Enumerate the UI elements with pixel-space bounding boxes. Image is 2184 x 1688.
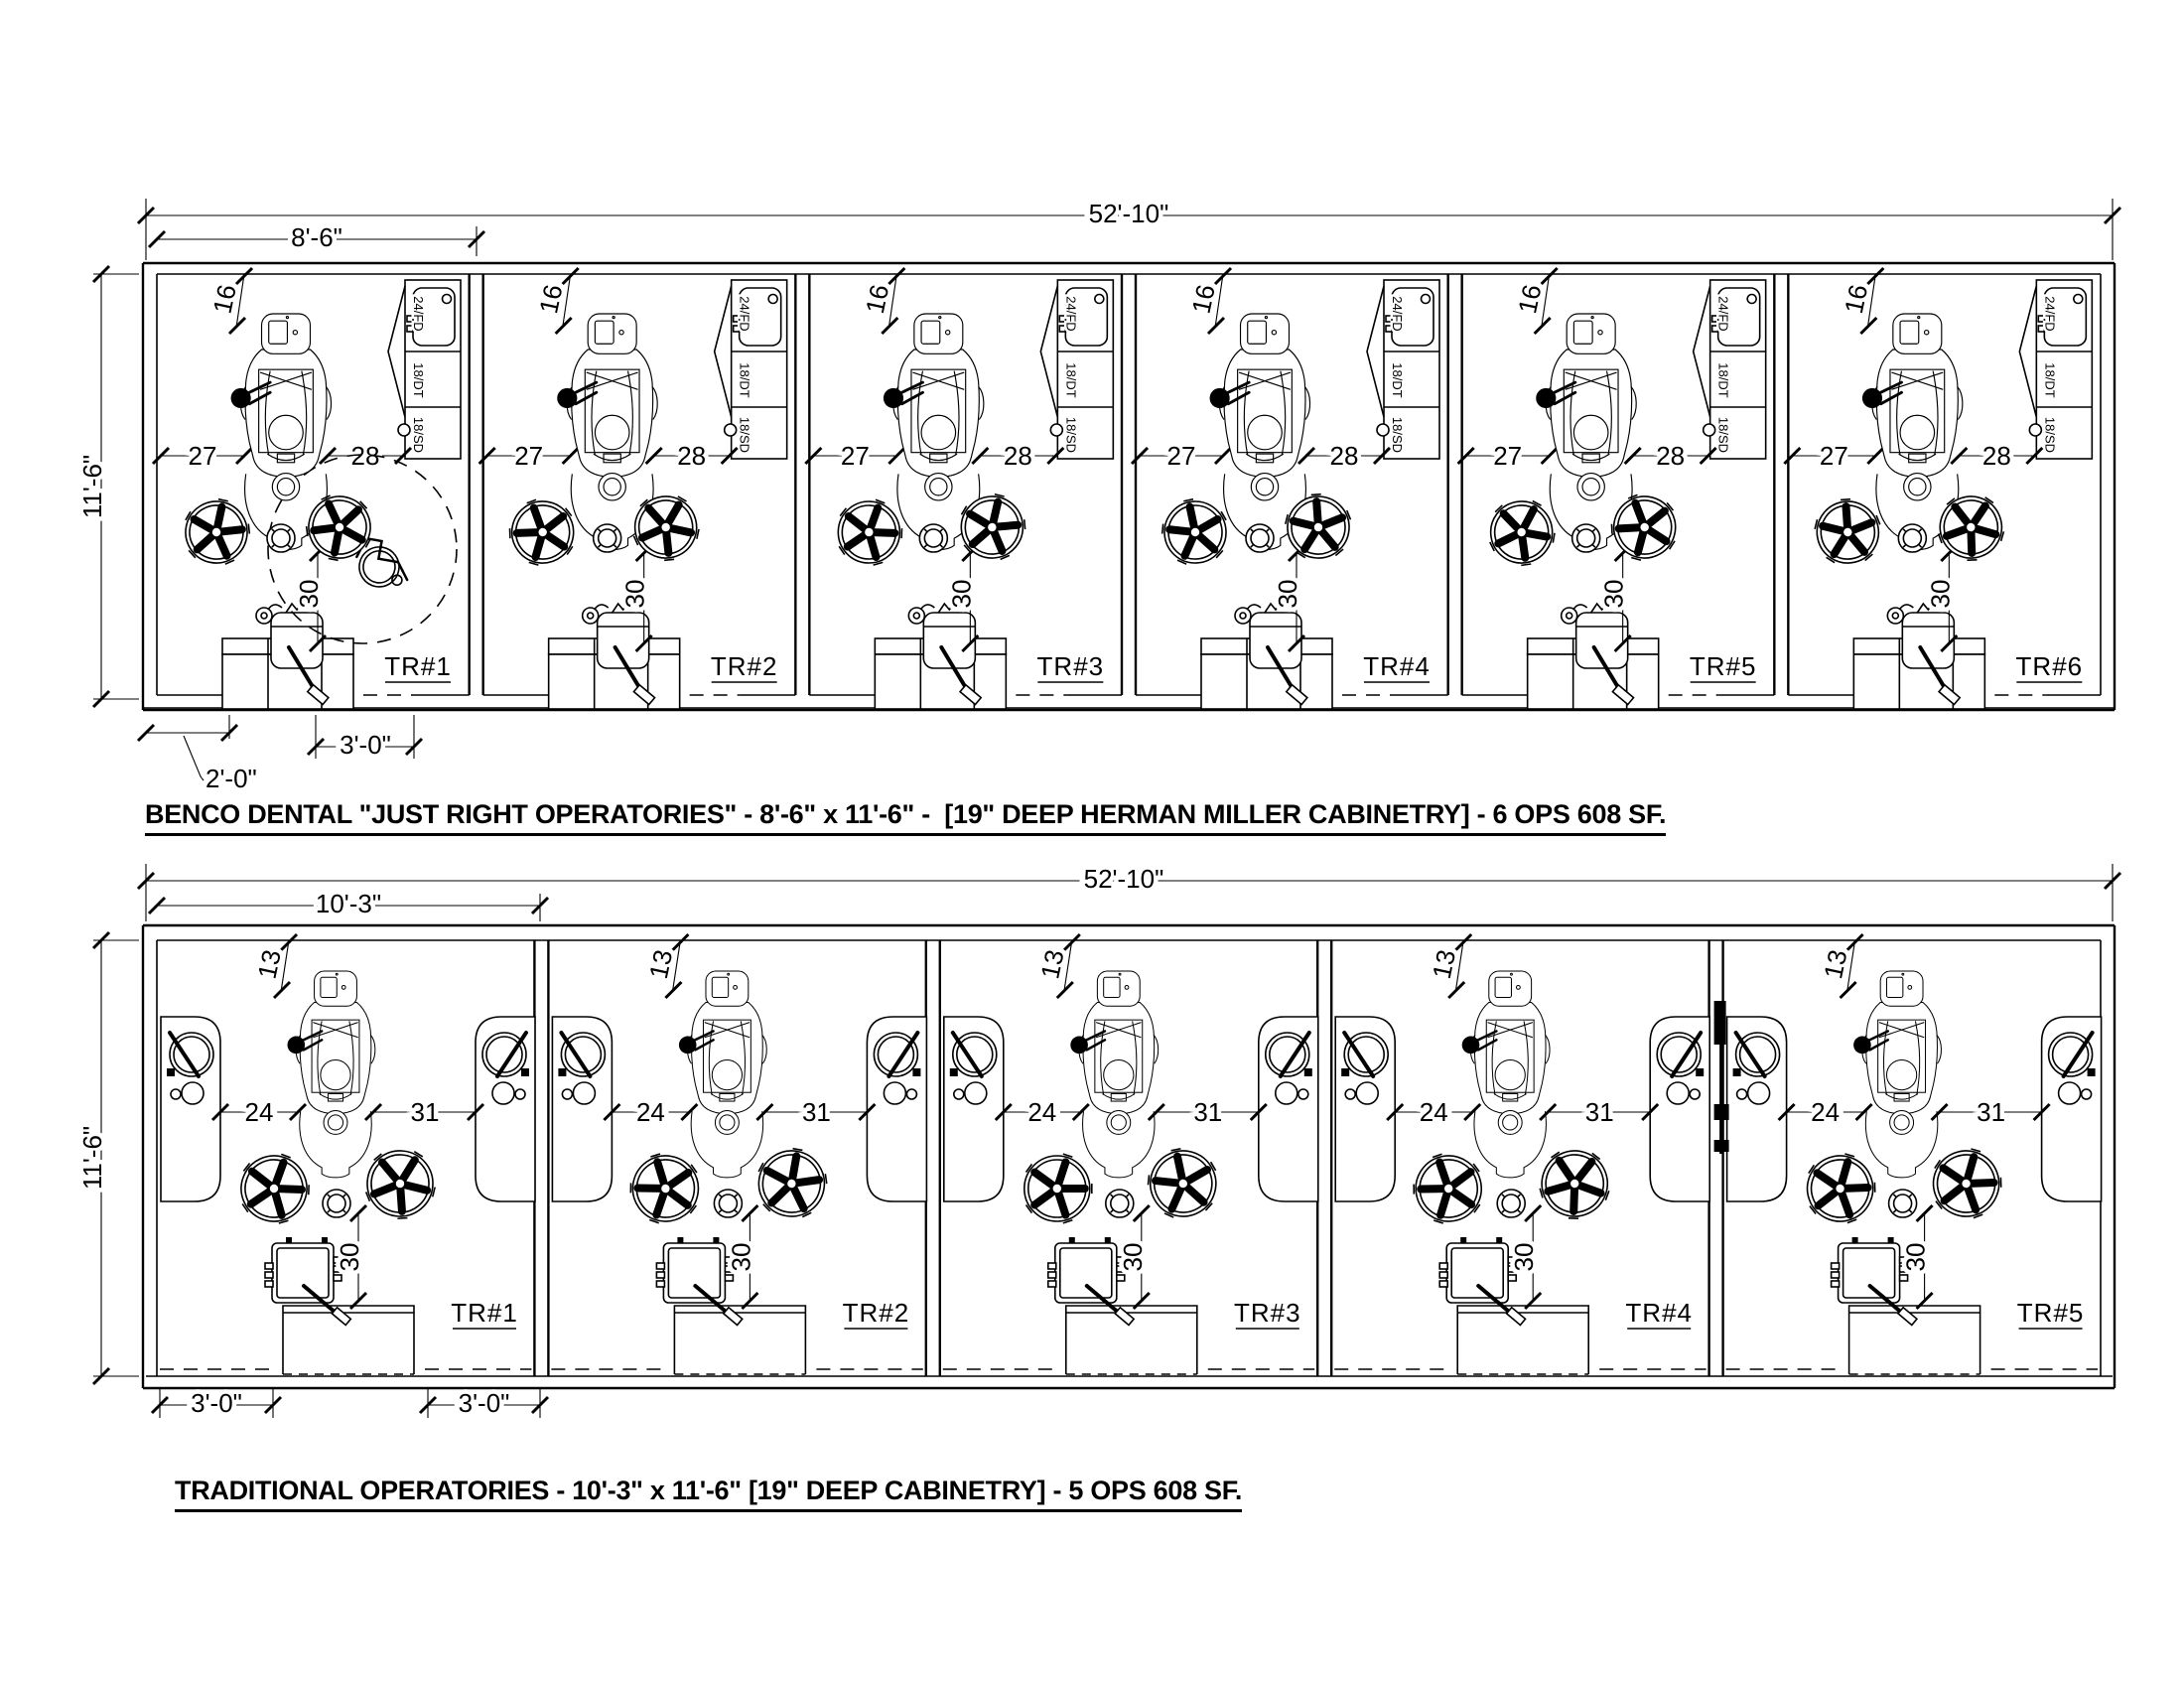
cabinet-size-label: 18/DT	[738, 362, 752, 397]
dental-chair	[679, 971, 766, 1178]
operatory-TR#1: 24313013TR#1	[161, 934, 535, 1374]
head-clearance-dimension: 13	[643, 934, 688, 998]
dim-text: 27	[189, 441, 217, 471]
sink-counter	[476, 1017, 535, 1201]
dim-text: 30	[620, 580, 650, 609]
traditional-plan-caption: TRADITIONAL OPERATORIES - 10'-3" x 11'-6…	[175, 1476, 1242, 1512]
dim-text: 13	[252, 947, 287, 982]
cuspidor-stool	[594, 524, 621, 552]
room-label: TR#2	[711, 651, 778, 681]
sink-cabinet: 24/FD18/DT18/SD	[1040, 280, 1113, 459]
operator-stool	[178, 493, 255, 569]
head-clearance-dimension: 16	[533, 268, 578, 334]
plan-dimensions: 52'-10"10'-3"11'-6"3'-0"3'-0"	[77, 864, 2120, 1418]
head-clearance-dimension: 16	[1512, 268, 1557, 334]
cabinet-size-label: 18/DT	[411, 362, 426, 397]
sink-counter	[1335, 1017, 1395, 1201]
cabinet-size-label: 24/FD	[1063, 296, 1078, 331]
room-label: TR#3	[1234, 1298, 1301, 1328]
operatory-TR#6: 24/FD18/DT18/SD27283016TR#6	[1784, 268, 2092, 709]
bay-width-dim: 8'-6"	[291, 222, 342, 252]
dim-text: 30	[946, 580, 976, 609]
cuspidor-stool	[1246, 524, 1274, 552]
dim-text: 16	[860, 282, 894, 317]
sink-counter	[944, 1017, 1004, 1201]
head-clearance-dimension: 13	[252, 934, 297, 998]
operator-stool	[1274, 483, 1365, 573]
cuspidor-stool	[267, 524, 295, 552]
chair-to-counter-dimension: 30	[1509, 1205, 1541, 1309]
cabinet-size-label: 18/DT	[1390, 362, 1405, 397]
dim-text: 30	[1901, 1243, 1931, 1272]
chair-to-counter-dimension: 30	[726, 1205, 757, 1309]
plan-drawing-canvas: 24/FD18/DT18/SD27283016TR#124/FD18/DT18/…	[0, 0, 2184, 1688]
dim-text: 13	[1427, 947, 1461, 982]
cabinet-size-label: 18/DT	[1716, 362, 1731, 397]
operator-stool	[622, 483, 711, 570]
head-clearance-dimension: 16	[1186, 268, 1231, 334]
cabinet-size-label: 18/DT	[1063, 362, 1078, 397]
room-label: TR#1	[384, 651, 452, 681]
operator-stool	[1797, 1146, 1885, 1233]
operatory-TR#3: 24/FD18/DT18/SD27283016TR#3	[805, 268, 1113, 709]
cabinet-size-label: 18/SD	[1063, 417, 1078, 453]
chair-to-counter-dimension: 30	[1118, 1205, 1150, 1309]
room-label: TR#3	[1037, 651, 1105, 681]
dental-chair	[287, 971, 374, 1178]
dim-text: 24	[636, 1097, 665, 1127]
operatory-TR#2: 24313013TR#2	[552, 934, 926, 1374]
head-clearance-dimension: 16	[207, 268, 252, 334]
dim-text: 24	[245, 1097, 274, 1127]
operatory-TR#1: 24/FD18/DT18/SD27283016TR#1	[153, 268, 461, 709]
dim-text: 13	[1818, 947, 1852, 982]
dim-text: 16	[533, 282, 568, 317]
sink-counter	[161, 1017, 220, 1201]
dental-chair	[1462, 971, 1550, 1178]
operator-stool	[1485, 497, 1559, 570]
cuspidor-stool	[714, 1190, 742, 1217]
rear-assistant-unit	[1853, 600, 1984, 709]
operator-stool	[1803, 489, 1892, 577]
operatory-TR#3: 24313013TR#3	[944, 934, 1318, 1374]
operatory-TR#5: 24313013TR#5	[1714, 934, 2102, 1374]
traditional-plan: 24313013TR#124313013TR#224313013TR#32431…	[77, 864, 2120, 1418]
dim-text: 24	[1420, 1097, 1448, 1127]
sink-counter	[1259, 1017, 1318, 1201]
dim-text: 28	[1330, 441, 1359, 471]
dim-text: 30	[1599, 580, 1629, 609]
overall-width-dim: 52'-10"	[1089, 199, 1169, 228]
room-label: TR#6	[2016, 651, 2084, 681]
dim-text: 30	[294, 580, 324, 609]
head-clearance-dimension: 13	[1818, 934, 1862, 998]
sink-counter	[1727, 1017, 1787, 1201]
room-depth-dim: 11'-6"	[77, 455, 107, 518]
cabinet-size-label: 24/FD	[738, 296, 752, 331]
dim-text: 31	[802, 1097, 831, 1127]
dim-text: 27	[514, 441, 543, 471]
head-clearance-dimension: 16	[860, 268, 904, 334]
dim-text: 30	[335, 1243, 364, 1272]
chair-to-counter-dimension: 30	[335, 1205, 366, 1309]
sink-counter	[2042, 1017, 2102, 1201]
dim-text: 31	[1585, 1097, 1614, 1127]
cabinet-size-label: 24/FD	[2042, 296, 2057, 331]
cuspidor-stool	[919, 524, 947, 552]
sink-cabinet: 24/FD18/DT18/SD	[2019, 280, 2092, 459]
room-label: TR#5	[1690, 651, 1757, 681]
operator-stool	[959, 492, 1027, 562]
room-label: TR#1	[451, 1298, 518, 1328]
dim-text: 13	[1034, 947, 1069, 982]
benco-plan-caption: BENCO DENTAL "JUST RIGHT OPERATORIES" - …	[145, 799, 1666, 836]
rear-assistant-unit	[1201, 600, 1332, 709]
cuspidor-stool	[323, 1190, 350, 1217]
cabinet-size-label: 18/SD	[1716, 417, 1731, 453]
overall-width-dim: 52'-10"	[1084, 864, 1164, 894]
head-clearance-dimension: 16	[1839, 268, 1883, 334]
room-depth-dim: 11'-6"	[77, 1126, 107, 1190]
dim-text: 30	[1925, 580, 1955, 609]
operator-stool	[837, 498, 902, 566]
door-width-dim: 3'-0"	[340, 730, 391, 760]
room-label: TR#4	[1363, 651, 1431, 681]
dim-text: 30	[1273, 580, 1302, 609]
operator-stool	[1604, 490, 1684, 568]
cabinet-size-label: 24/FD	[1390, 296, 1405, 331]
benco-plan: 24/FD18/DT18/SD27283016TR#124/FD18/DT18/…	[77, 199, 2120, 793]
rear-assistant-unit	[549, 600, 680, 709]
dim-text: 30	[726, 1243, 755, 1272]
cuspidor-stool	[1889, 1190, 1917, 1217]
door-width-dim: 3'-0"	[191, 1388, 242, 1418]
operator-stool	[1929, 486, 2011, 569]
dental-chair	[1853, 971, 1941, 1178]
cabinet-size-label: 18/SD	[411, 417, 426, 453]
rear-assistant-unit	[875, 600, 1006, 709]
dim-text: 24	[1027, 1097, 1056, 1127]
cabinet-size-label: 18/SD	[738, 417, 752, 453]
dim-text: 31	[1193, 1097, 1222, 1127]
operator-stool	[351, 1135, 448, 1231]
dim-text: 31	[1977, 1097, 2005, 1127]
dim-text: 28	[1656, 441, 1685, 471]
dim-text: 28	[677, 441, 706, 471]
operator-stool	[498, 487, 589, 577]
dim-text: 30	[1118, 1243, 1148, 1272]
dim-text: 16	[1512, 282, 1547, 317]
cabinet-size-label: 18/SD	[2042, 417, 2057, 453]
sink-cabinet: 24/FD18/DT18/SD	[388, 280, 461, 459]
room-label: TR#5	[2017, 1298, 2085, 1328]
chair-to-counter-dimension: 30	[1901, 1205, 1933, 1309]
operator-stool	[1532, 1140, 1619, 1228]
dim-text: 16	[1839, 282, 1873, 317]
rear-assistant-unit	[222, 600, 353, 709]
cuspidor-stool	[1106, 1190, 1134, 1217]
cuspidor-stool	[1572, 524, 1600, 552]
dim-text: 31	[411, 1097, 440, 1127]
rear-assistant-unit	[1528, 600, 1659, 709]
dim-text: 24	[1811, 1097, 1840, 1127]
operator-stool	[1024, 1154, 1092, 1223]
sink-cabinet: 24/FD18/DT18/SD	[715, 280, 787, 459]
cuspidor-stool	[1497, 1190, 1525, 1217]
operator-stool	[751, 1143, 831, 1221]
cabinet-size-label: 24/FD	[1716, 296, 1731, 331]
operator-stool	[230, 1144, 319, 1231]
operatory-TR#4: 24313013TR#4	[1335, 934, 1709, 1374]
dim-text: 28	[1004, 441, 1032, 471]
dim-text: 27	[841, 441, 870, 471]
bay-width-dim: 10'-3"	[316, 889, 381, 918]
cuspidor-stool	[1898, 524, 1926, 552]
dim-text: 27	[1820, 441, 1848, 471]
head-clearance-dimension: 13	[1034, 934, 1079, 998]
dim-text: 13	[643, 947, 678, 982]
cabinet-size-label: 18/SD	[1390, 417, 1405, 453]
floor-plan-sheet: 24/FD18/DT18/SD27283016TR#124/FD18/DT18/…	[0, 0, 2184, 1688]
operator-stool	[1138, 1136, 1231, 1229]
dim-text: 30	[1509, 1243, 1539, 1272]
room-label: TR#2	[843, 1298, 910, 1328]
operatory-TR#4: 24/FD18/DT18/SD27283016TR#4	[1132, 268, 1439, 709]
operatory-TR#2: 24/FD18/DT18/SD27283016TR#2	[479, 268, 787, 709]
door-width-dim: 2'-0"	[205, 764, 257, 793]
sink-cabinet: 24/FD18/DT18/SD	[1367, 280, 1439, 459]
dim-text: 28	[1982, 441, 2011, 471]
sink-counter	[552, 1017, 612, 1201]
operatory-TR#5: 24/FD18/DT18/SD27283016TR#5	[1458, 268, 1766, 709]
room-label: TR#4	[1625, 1298, 1693, 1328]
head-clearance-dimension: 13	[1427, 934, 1471, 998]
door-width-dim: 3'-0"	[459, 1388, 510, 1418]
dim-text: 16	[1186, 282, 1221, 317]
sink-cabinet: 24/FD18/DT18/SD	[1694, 280, 1766, 459]
operator-stool	[1923, 1141, 2011, 1228]
operator-stool	[296, 484, 382, 569]
dim-text: 27	[1167, 441, 1196, 471]
sink-counter	[1650, 1017, 1709, 1201]
dim-text: 27	[1493, 441, 1522, 471]
operator-stool	[1151, 488, 1242, 579]
cabinet-size-label: 18/DT	[2042, 362, 2057, 397]
sink-counter	[867, 1017, 926, 1201]
dim-text: 16	[207, 282, 242, 317]
dental-chair	[1070, 971, 1158, 1178]
cabinet-size-label: 24/FD	[411, 296, 426, 331]
operator-stool	[618, 1140, 714, 1235]
